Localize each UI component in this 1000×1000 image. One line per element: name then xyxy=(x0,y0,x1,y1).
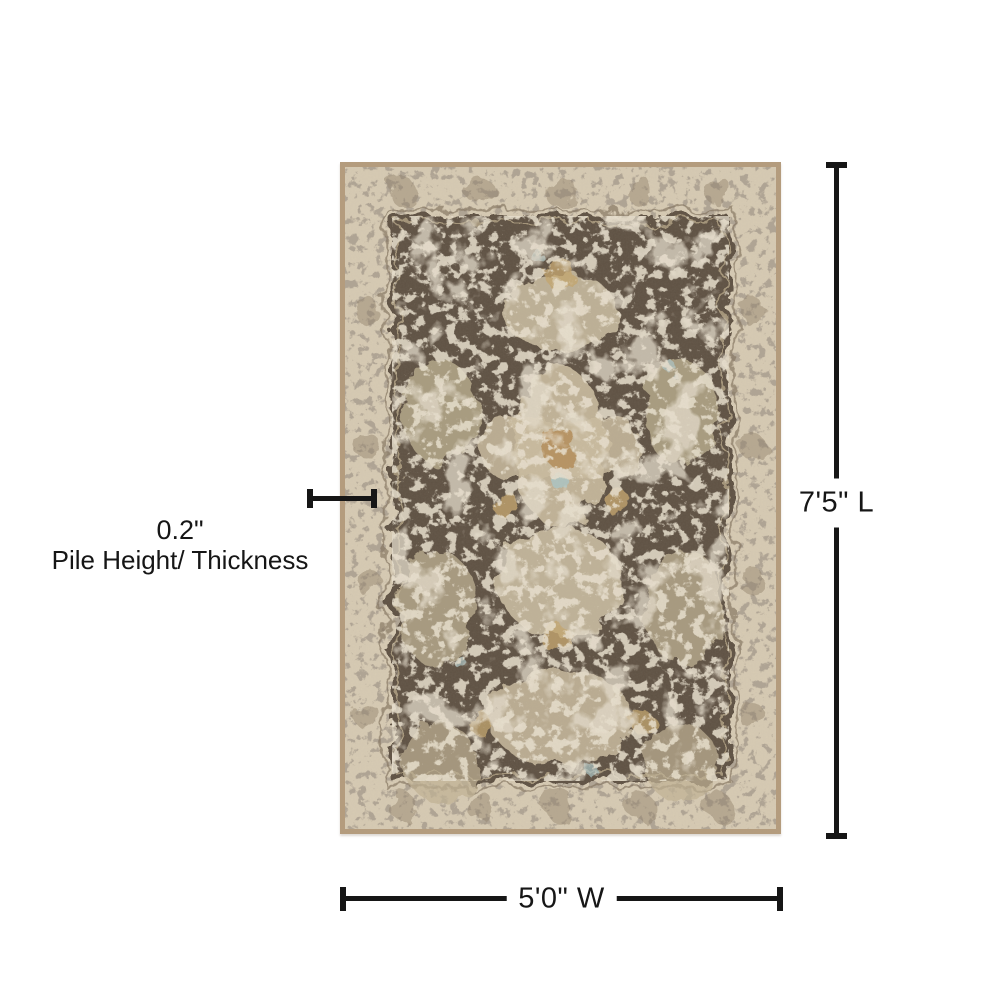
pile-marker-right-cap xyxy=(371,489,377,508)
length-dimension-line: 7'5" L xyxy=(826,162,847,839)
width-dimension-line: 5'0" W xyxy=(340,887,783,911)
length-label: 7'5" L xyxy=(797,479,876,528)
pile-height-description: Pile Height/ Thickness xyxy=(10,545,350,575)
pile-marker-line xyxy=(307,496,377,501)
rug-dimension-diagram: 7'5" L 5'0" W 0.2" Pile Height/ Thicknes… xyxy=(0,0,1000,1000)
pile-height-value: 0.2" xyxy=(10,515,350,545)
rug-artwork xyxy=(340,162,781,834)
length-line-bottom-cap xyxy=(826,833,847,839)
pile-height-text: 0.2" Pile Height/ Thickness xyxy=(10,515,350,575)
width-label: 5'0" W xyxy=(506,885,617,914)
pile-height-marker xyxy=(307,489,377,508)
width-line-right-cap xyxy=(777,887,783,911)
rug-image xyxy=(340,162,781,834)
